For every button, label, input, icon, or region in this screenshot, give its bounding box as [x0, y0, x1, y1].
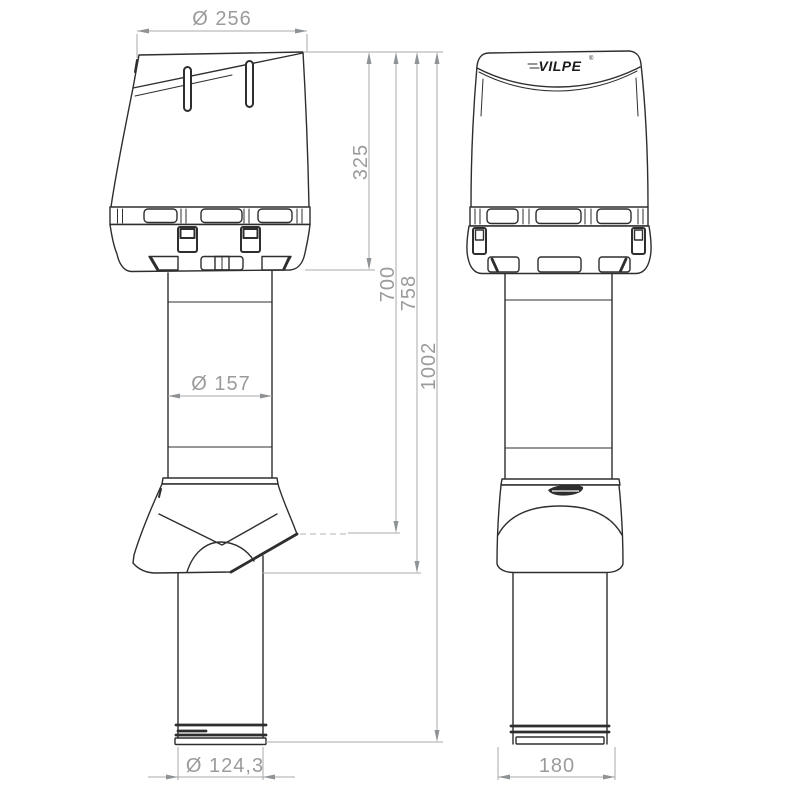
roof-flashing — [133, 478, 297, 573]
dimension-pipe-diameter: Ø 157 — [168, 373, 272, 399]
brand-registered-mark: ® — [589, 55, 594, 62]
cap-collar — [467, 226, 651, 274]
dimension-label-total-height: 1002 — [418, 342, 440, 391]
dimension-label-pipe-diameter: Ø 157 — [191, 373, 250, 395]
dimension-label-cap-diameter: Ø 256 — [192, 8, 251, 30]
dimension-bottom-pipe-diameter: Ø 124,3 — [148, 747, 295, 780]
pipe-end-flange — [516, 737, 604, 744]
brand-logo-text: VILPE — [539, 58, 582, 74]
dimension-height-to-roof: 700 — [300, 52, 400, 534]
technical-drawing-page: VILPE ® — [0, 0, 800, 800]
dimension-label-bottom-width: 180 — [539, 755, 575, 777]
dimension-cap-diameter: Ø 256 — [137, 8, 307, 58]
vent-pipe-technical-drawing: VILPE ® — [0, 0, 800, 800]
dimension-label-flashing-height: 758 — [398, 275, 420, 311]
lower-pipe — [175, 556, 266, 745]
cap-collar — [110, 225, 310, 272]
dimension-bottom-width: 180 — [498, 747, 615, 780]
roof-flashing — [497, 479, 623, 573]
front-view: VILPE ® — [467, 51, 651, 744]
upper-pipe — [505, 274, 612, 478]
pipe-end-flange — [175, 738, 266, 745]
cap-outline — [471, 51, 648, 207]
dimension-label-height-to-roof: 700 — [377, 266, 399, 302]
cap-louver-band — [470, 207, 648, 226]
lower-pipe — [511, 572, 609, 744]
dimension-label-bottom-pipe-diameter: Ø 124,3 — [186, 755, 264, 777]
dimension-cap-height: 325 — [305, 52, 375, 270]
cap-louver-band — [110, 207, 310, 225]
side-view — [110, 52, 310, 745]
dimension-label-cap-height: 325 — [350, 144, 372, 180]
cap-outline — [111, 52, 309, 207]
